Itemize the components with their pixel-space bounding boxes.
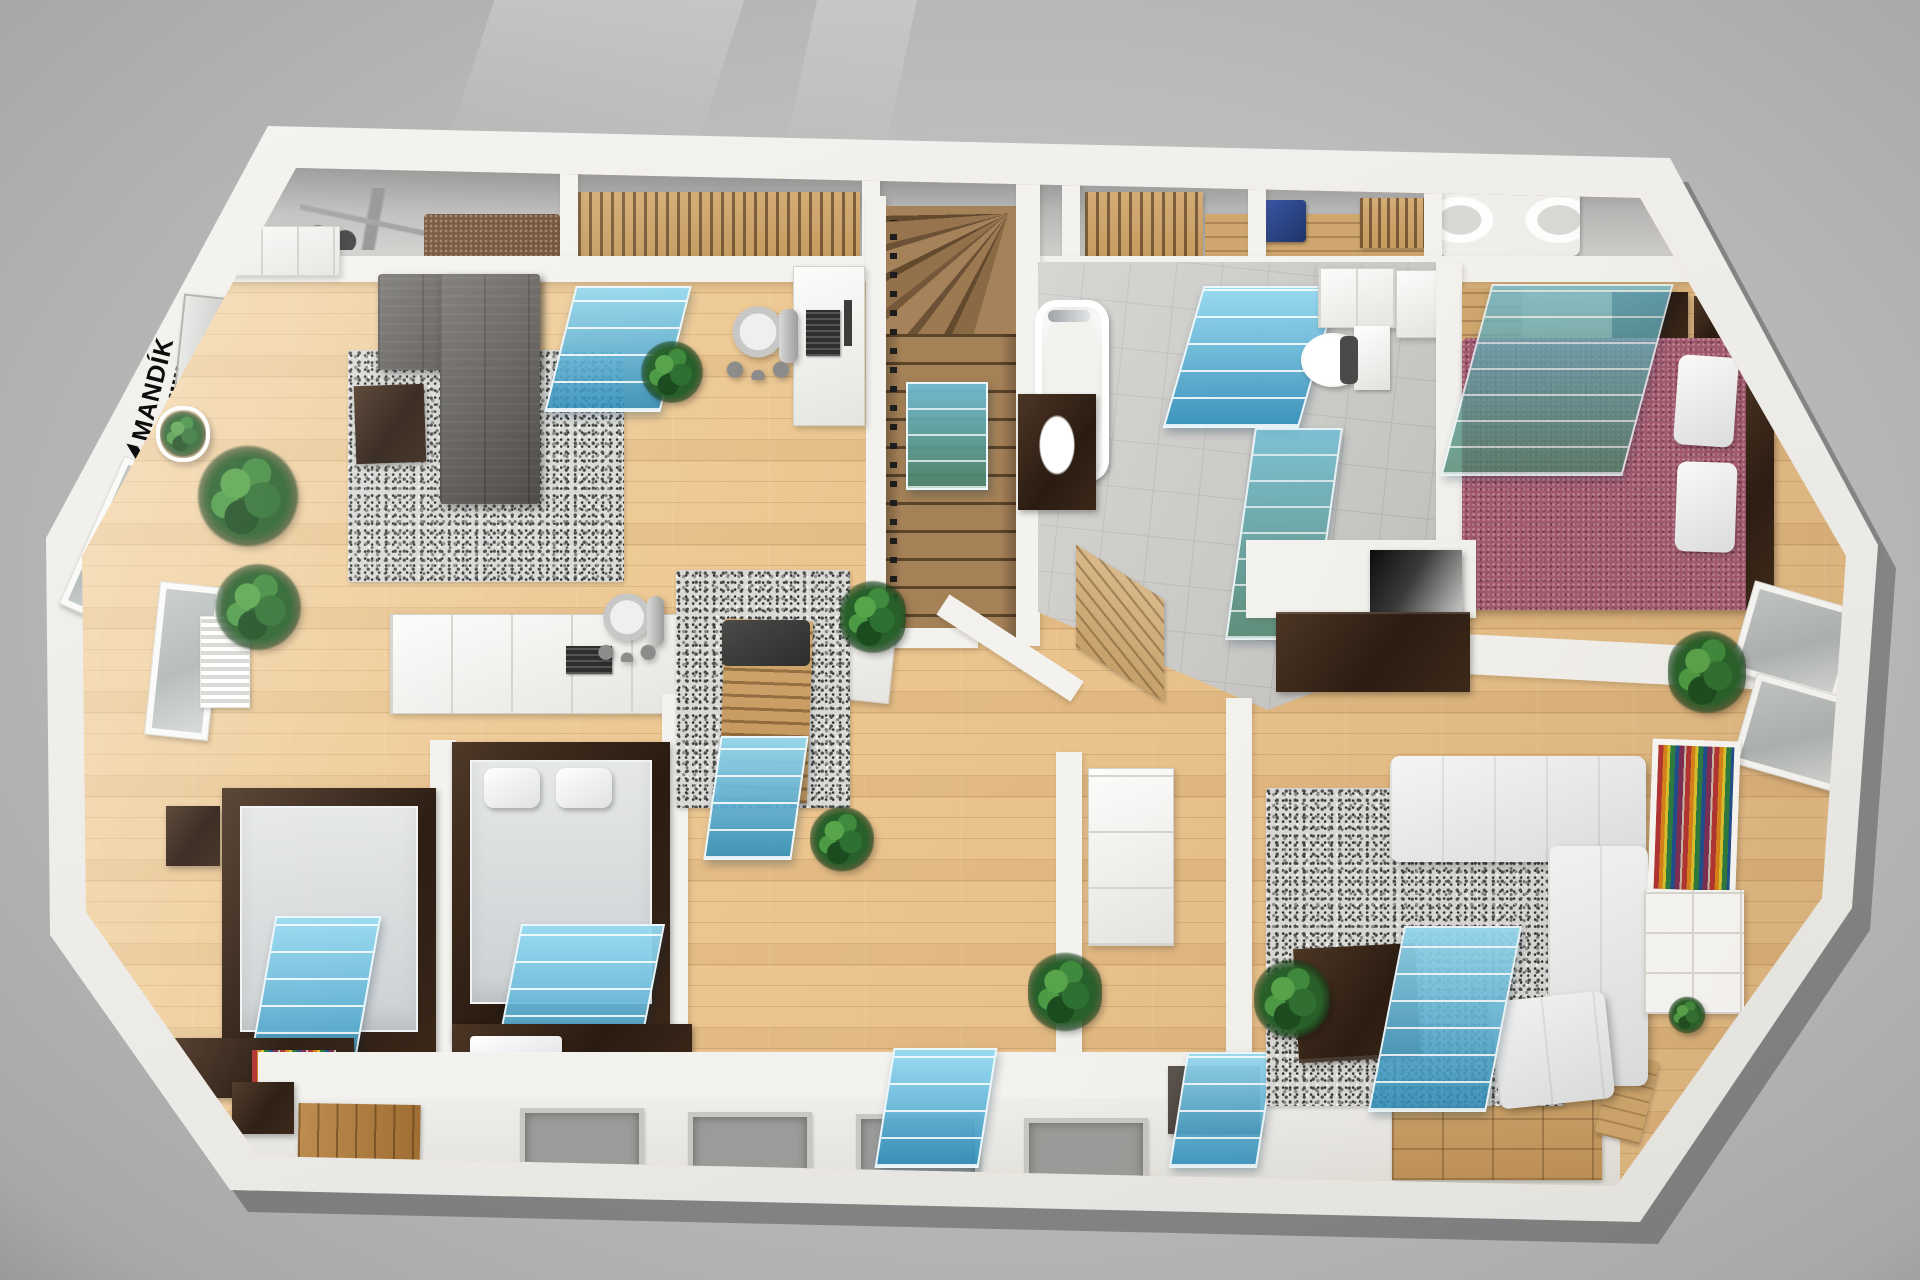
- doormat: [1024, 1118, 1148, 1200]
- charcoal-sofa-chaise: [440, 274, 540, 504]
- plant: [1668, 626, 1746, 718]
- attic-divider-wall: [1424, 168, 1442, 270]
- plant: [840, 576, 906, 658]
- attic-divider-wall: [1248, 168, 1266, 270]
- attic-closet-clothes: [578, 192, 860, 266]
- bed-pillow: [484, 768, 540, 808]
- bathroom-wall-cabinet: [1318, 268, 1396, 328]
- toilet-seat-back: [1340, 336, 1358, 384]
- dark-nightstand: [1694, 296, 1744, 340]
- corner-bathtub-top: [1438, 184, 1580, 256]
- entrance-door: [297, 1103, 420, 1185]
- white-cabinet: [188, 226, 340, 276]
- office-chair: [722, 294, 794, 380]
- plant: [640, 340, 704, 404]
- bed-pillow: [1673, 354, 1739, 448]
- stair-railing: [890, 220, 897, 620]
- corridor-wall-left: [1056, 752, 1082, 1096]
- blue-laundry-bin: [1262, 200, 1306, 242]
- white-sofa-chaise: [1489, 990, 1616, 1110]
- coffee-table-study: [354, 384, 427, 464]
- skylight-glass-hall: [874, 1048, 997, 1168]
- attic-closet-clothes: [1085, 192, 1203, 266]
- interior-floor: [0, 0, 1920, 1280]
- window-right: [1731, 672, 1865, 793]
- plant-small-pot: [160, 410, 206, 458]
- light-shaft: [783, 0, 917, 160]
- wall-tv-living: [1370, 550, 1462, 618]
- nightstand: [166, 806, 220, 866]
- plant-small: [1668, 996, 1706, 1034]
- monitor: [844, 300, 852, 346]
- plant-large: [196, 444, 300, 548]
- attic-shelf: [1360, 198, 1432, 248]
- bathtub-faucet: [1048, 310, 1090, 322]
- keyboard: [806, 310, 840, 356]
- bed-headboard: [1746, 342, 1774, 608]
- stair-winder-steps: [886, 206, 1016, 334]
- doormat: [688, 1112, 812, 1194]
- plant: [810, 804, 874, 874]
- attic-divider-wall: [560, 168, 578, 270]
- vanity-counter: [1018, 394, 1096, 510]
- lounger-cushion: [722, 620, 810, 666]
- white-wardrobe-hall: [1088, 768, 1174, 946]
- bed-pillow: [1674, 461, 1737, 553]
- light-shaft: [446, 0, 745, 150]
- bed-pillow: [556, 768, 612, 808]
- entry-dark-mat: [232, 1082, 294, 1134]
- house-shell: MANDÍK: [0, 0, 1920, 1280]
- attic-divider-wall: [1062, 168, 1080, 270]
- doormat: [520, 1108, 644, 1190]
- floor-plan-render: MANDÍK: [0, 0, 1920, 1280]
- colorful-bookshelf: [1647, 739, 1740, 898]
- cube-shelf: [1644, 890, 1744, 1014]
- plant: [1254, 956, 1330, 1042]
- skylight-glass-corridor: [1169, 1052, 1275, 1168]
- skylight-glass-lounge: [703, 736, 808, 860]
- corridor-wall-right: [1226, 698, 1252, 1096]
- dark-sideboard: [1276, 612, 1470, 692]
- stair-glass-balustrade: [906, 382, 988, 490]
- plant: [1028, 948, 1102, 1036]
- plant: [214, 562, 302, 652]
- office-chair: [594, 582, 660, 662]
- toilet-cistern: [1354, 326, 1390, 390]
